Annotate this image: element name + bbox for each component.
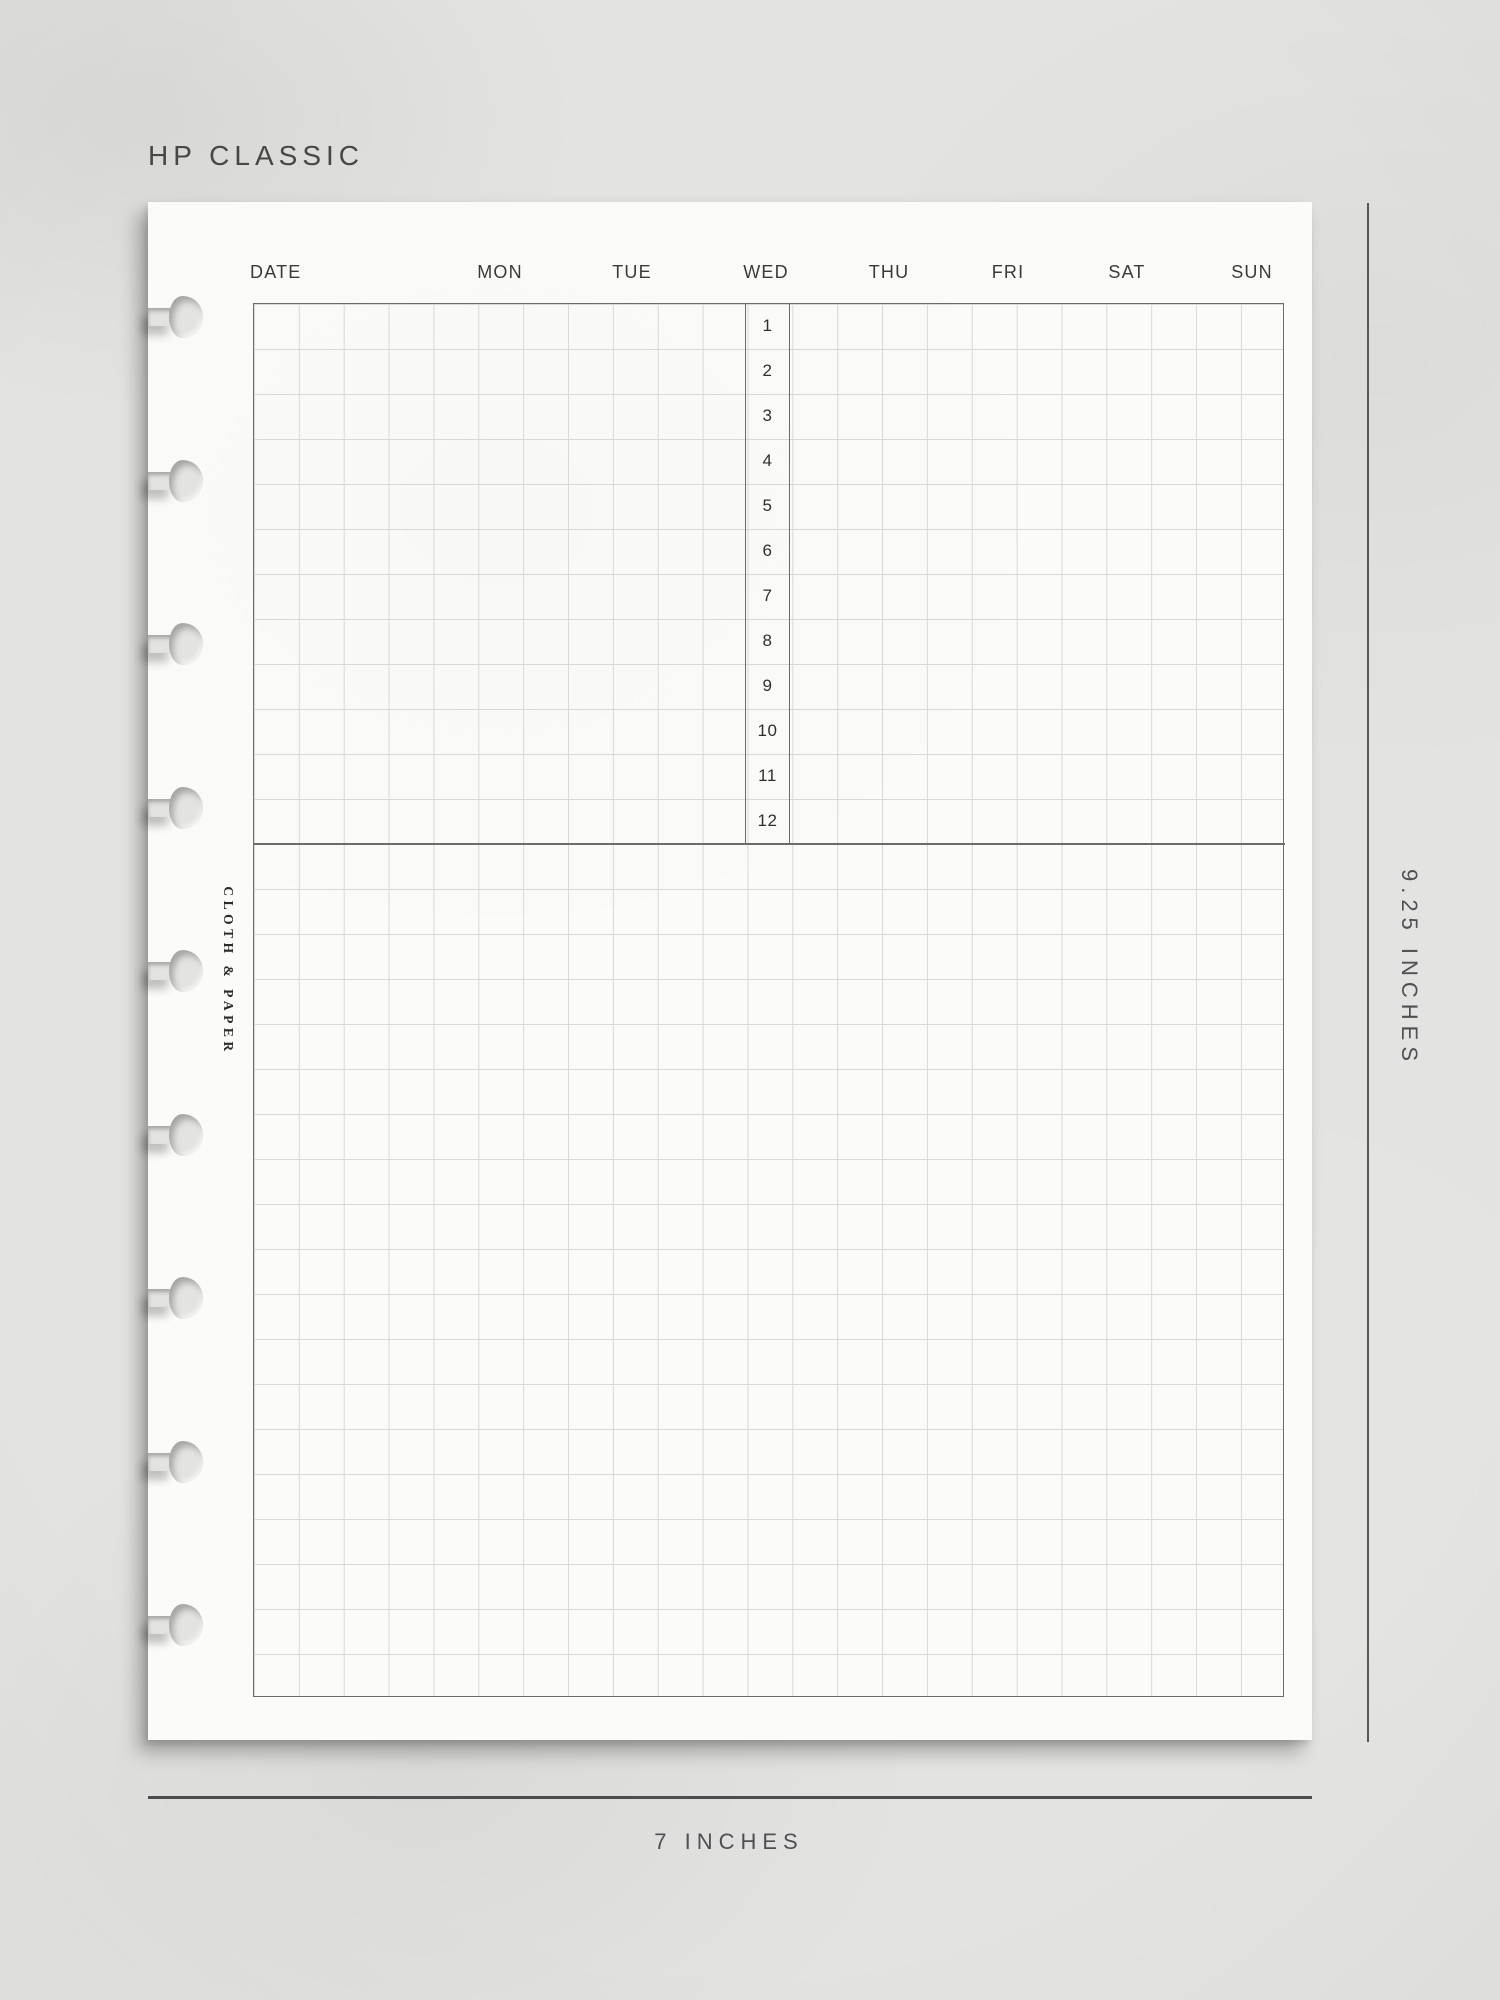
- hour-cell: 6: [746, 529, 789, 574]
- date-label: DATE: [250, 258, 301, 286]
- hour-cell: 7: [746, 574, 789, 619]
- punch-head: [169, 1441, 203, 1483]
- punch-head: [169, 1604, 203, 1646]
- disc-punch-hole: [148, 1440, 208, 1484]
- hour-cell: 10: [746, 708, 789, 753]
- hour-cell: 5: [746, 484, 789, 529]
- width-dimension-label: 7 INCHES: [654, 1829, 803, 1855]
- hour-cell: 3: [746, 394, 789, 439]
- disc-punch-hole: [148, 622, 208, 666]
- day-label-wed: WED: [743, 258, 789, 286]
- hour-cell: 11: [746, 753, 789, 798]
- punch-head: [169, 950, 203, 992]
- width-ruler-line: [148, 1796, 1312, 1799]
- day-label-fri: FRI: [992, 258, 1025, 286]
- punch-head: [169, 460, 203, 502]
- day-label-tue: TUE: [612, 258, 652, 286]
- punch-head: [169, 1114, 203, 1156]
- disc-punch-hole: [148, 1603, 208, 1647]
- brand-label: CLOTH & PAPER: [220, 886, 236, 1055]
- punch-head: [169, 787, 203, 829]
- hour-cell: 9: [746, 663, 789, 708]
- planner-page: DATE MONTUEWEDTHUFRISATSUN 1234567891011…: [148, 202, 1312, 1740]
- section-divider: [253, 843, 1285, 845]
- disc-punch-hole: [148, 949, 208, 993]
- height-dimension-label: 9.25 INCHES: [1396, 869, 1422, 1067]
- disc-punch-hole: [148, 295, 208, 339]
- disc-punch-hole: [148, 459, 208, 503]
- disc-punch-hole: [148, 786, 208, 830]
- day-label-mon: MON: [477, 258, 523, 286]
- punch-head: [169, 623, 203, 665]
- punch-head: [169, 296, 203, 338]
- day-header-row: DATE MONTUEWEDTHUFRISATSUN: [148, 258, 1312, 286]
- day-label-thu: THU: [869, 258, 910, 286]
- product-title: HP CLASSIC: [148, 140, 364, 172]
- week-grid-table: 123456789101112: [253, 303, 1284, 1697]
- day-label-sat: SAT: [1108, 258, 1145, 286]
- disc-punch-hole: [148, 1276, 208, 1320]
- punch-head: [169, 1277, 203, 1319]
- hour-cell: 2: [746, 349, 789, 394]
- hour-cell: 1: [746, 304, 789, 349]
- hour-cell: 4: [746, 439, 789, 484]
- day-label-sun: SUN: [1231, 258, 1273, 286]
- hour-cell: 8: [746, 618, 789, 663]
- disc-punch-hole: [148, 1113, 208, 1157]
- hour-cell: 12: [746, 798, 789, 843]
- height-ruler-line: [1367, 203, 1369, 1742]
- time-column: 123456789101112: [745, 304, 790, 843]
